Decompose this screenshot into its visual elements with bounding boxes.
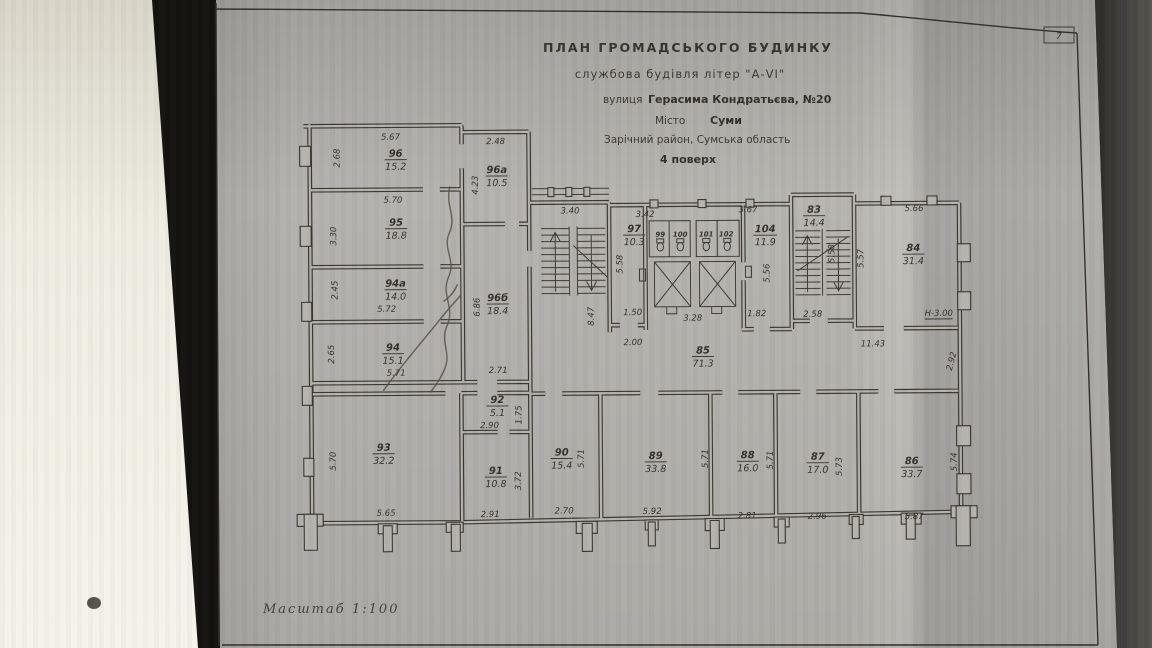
svg-text:97: 97 <box>627 224 641 235</box>
svg-text:1.50: 1.50 <box>623 308 642 318</box>
svg-text:10.5: 10.5 <box>486 178 507 189</box>
stall-99-label: 99 <box>655 231 665 239</box>
city-label: Місто <box>655 115 685 127</box>
plan-title: ПЛАН ГРОМАДСЬКОГО БУДИНКУ <box>543 40 833 55</box>
svg-text:5.87: 5.87 <box>905 512 925 522</box>
svg-text:2.68: 2.68 <box>333 148 343 168</box>
svg-text:33.8: 33.8 <box>645 464 666 475</box>
svg-text:33.7: 33.7 <box>901 469 922 480</box>
svg-text:Н-3.00: Н-3.00 <box>925 309 953 319</box>
svg-text:2.91: 2.91 <box>481 510 500 520</box>
svg-text:96б: 96б <box>487 292 508 304</box>
svg-text:15.1: 15.1 <box>382 356 403 367</box>
stall-101-label: 101 <box>699 230 714 238</box>
plan-subtitle: службова будівля літер "А-VI" <box>575 67 785 81</box>
svg-text:88: 88 <box>741 450 755 461</box>
svg-text:5.58: 5.58 <box>827 244 837 264</box>
svg-text:5.57: 5.57 <box>856 248 866 268</box>
scale-note: Масштаб 1:100 <box>262 602 399 617</box>
svg-text:5.58: 5.58 <box>615 254 625 274</box>
svg-text:95: 95 <box>389 218 403 229</box>
svg-text:3.72: 3.72 <box>514 471 524 490</box>
wall-mark <box>87 597 101 609</box>
svg-text:17.0: 17.0 <box>807 465 828 476</box>
svg-text:10.8: 10.8 <box>485 479 506 490</box>
svg-text:2.58: 2.58 <box>803 310 823 320</box>
svg-text:3.42: 3.42 <box>636 210 655 220</box>
photo-of-floor-plan: 7 ПЛАН ГРОМАДСЬКОГО БУДИНКУ службова буд… <box>0 0 1152 648</box>
svg-text:2.45: 2.45 <box>331 281 341 300</box>
svg-text:18.4: 18.4 <box>487 306 508 317</box>
svg-text:14.0: 14.0 <box>385 292 406 303</box>
svg-text:2.00: 2.00 <box>623 338 642 348</box>
stall-102-label: 102 <box>719 230 734 238</box>
svg-text:2.48: 2.48 <box>486 137 506 147</box>
svg-text:1.75: 1.75 <box>514 405 524 424</box>
district-line: Зарічний район, Сумська область <box>604 134 790 146</box>
svg-text:2.70: 2.70 <box>555 506 574 516</box>
svg-text:5.1: 5.1 <box>490 408 505 419</box>
floor-label: 4 поверх <box>660 153 716 166</box>
svg-text:87: 87 <box>811 452 825 463</box>
svg-text:71.3: 71.3 <box>692 358 713 369</box>
svg-text:16.0: 16.0 <box>737 463 758 474</box>
svg-text:83: 83 <box>807 205 821 216</box>
svg-text:86: 86 <box>905 456 919 467</box>
svg-text:18.8: 18.8 <box>386 231 407 242</box>
svg-text:3.28: 3.28 <box>683 314 703 324</box>
stall-100-label: 100 <box>673 231 688 239</box>
page-number: 7 <box>1056 32 1062 42</box>
svg-text:89: 89 <box>649 451 663 462</box>
svg-text:5.74: 5.74 <box>950 452 960 471</box>
svg-text:15.2: 15.2 <box>385 162 406 173</box>
svg-text:92: 92 <box>490 395 504 406</box>
svg-text:96а: 96а <box>486 165 507 176</box>
svg-text:85: 85 <box>696 346 710 357</box>
svg-text:2.71: 2.71 <box>489 366 508 376</box>
svg-text:5.56: 5.56 <box>762 263 772 283</box>
svg-text:5.72: 5.72 <box>377 305 396 315</box>
svg-text:5.71: 5.71 <box>577 449 587 468</box>
svg-text:91: 91 <box>489 466 503 477</box>
svg-text:90: 90 <box>555 448 569 459</box>
svg-text:3.30: 3.30 <box>329 227 339 246</box>
svg-text:93: 93 <box>377 443 391 454</box>
svg-text:11.43: 11.43 <box>861 339 885 349</box>
svg-text:32.2: 32.2 <box>373 456 394 467</box>
street-value: Герасима Кондратьєва, №20 <box>648 93 832 106</box>
svg-text:94: 94 <box>386 343 400 354</box>
svg-text:8.47: 8.47 <box>587 306 597 326</box>
svg-text:5.65: 5.65 <box>377 509 396 519</box>
street-label: вулиця <box>603 94 642 106</box>
svg-text:5.73: 5.73 <box>835 457 845 476</box>
svg-text:2.81: 2.81 <box>738 511 757 521</box>
svg-text:5.66: 5.66 <box>905 204 925 214</box>
svg-text:84: 84 <box>906 243 920 254</box>
svg-text:2.96: 2.96 <box>808 512 828 522</box>
svg-text:5.67: 5.67 <box>381 133 401 143</box>
svg-text:94а: 94а <box>385 279 406 290</box>
city-value: Суми <box>710 114 742 127</box>
svg-text:14.4: 14.4 <box>804 218 825 229</box>
svg-text:4.23: 4.23 <box>471 176 481 195</box>
svg-text:3.67: 3.67 <box>739 205 759 215</box>
svg-text:5.71: 5.71 <box>701 449 711 468</box>
svg-text:5.92: 5.92 <box>643 507 662 517</box>
svg-text:3.40: 3.40 <box>561 206 580 216</box>
svg-text:10.3: 10.3 <box>624 237 645 248</box>
svg-text:2.65: 2.65 <box>327 345 337 364</box>
svg-text:6.86: 6.86 <box>473 297 483 317</box>
svg-text:5.70: 5.70 <box>329 452 339 471</box>
svg-text:104: 104 <box>755 224 776 235</box>
svg-text:15.4: 15.4 <box>551 460 572 471</box>
svg-text:2.90: 2.90 <box>480 421 499 431</box>
svg-text:5.70: 5.70 <box>383 196 402 206</box>
scale-label: Масштаб <box>262 602 346 617</box>
svg-text:1.82: 1.82 <box>747 309 766 319</box>
svg-text:5.71: 5.71 <box>766 451 776 470</box>
svg-text:11.9: 11.9 <box>755 237 776 248</box>
svg-text:31.4: 31.4 <box>903 256 924 267</box>
scale-value: 1:100 <box>352 602 399 617</box>
svg-text:96: 96 <box>389 149 403 160</box>
